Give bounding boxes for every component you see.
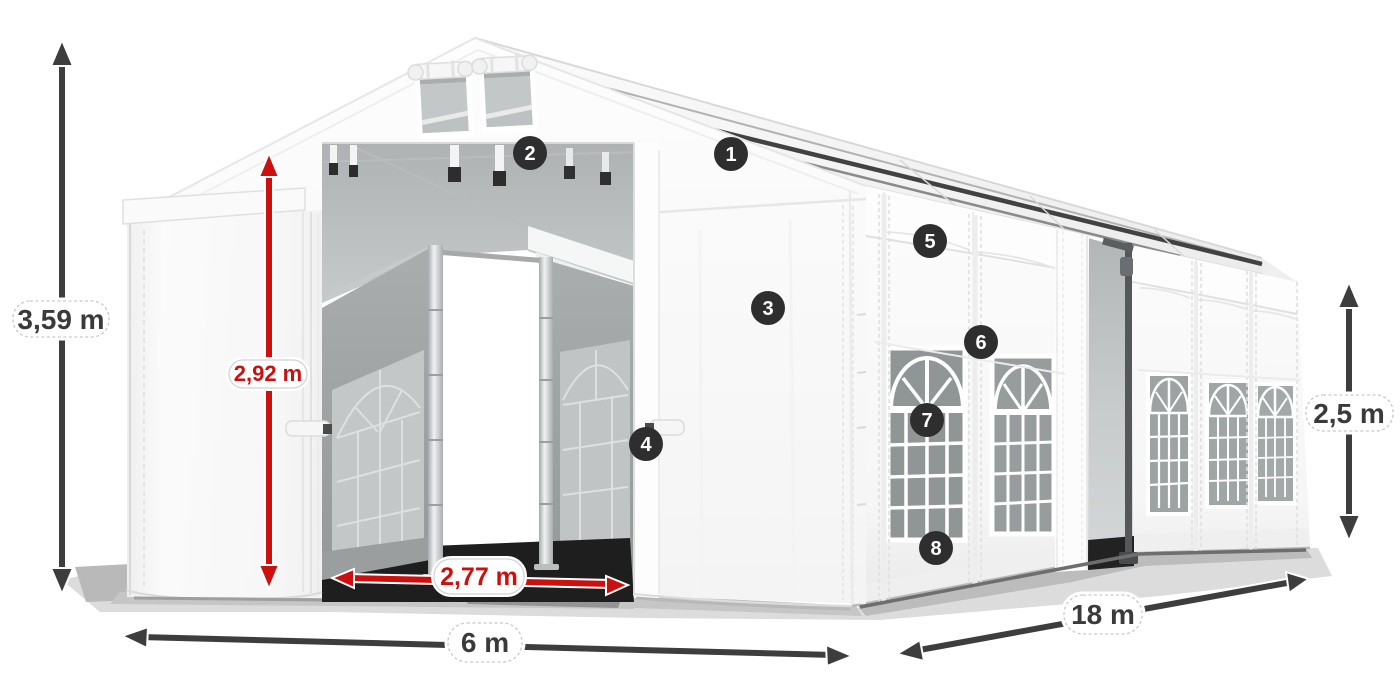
- svg-text:1: 1: [725, 144, 736, 166]
- svg-text:2,92 m: 2,92 m: [234, 361, 303, 386]
- svg-text:3,59 m: 3,59 m: [17, 304, 104, 335]
- svg-text:6: 6: [975, 332, 986, 354]
- svg-text:2: 2: [524, 143, 535, 165]
- svg-text:5: 5: [924, 231, 935, 253]
- svg-text:4: 4: [640, 434, 652, 456]
- svg-text:6 m: 6 m: [461, 627, 509, 658]
- svg-text:3: 3: [762, 298, 773, 320]
- svg-text:2,5 m: 2,5 m: [1313, 398, 1385, 429]
- svg-text:7: 7: [921, 410, 932, 432]
- svg-text:18 m: 18 m: [1071, 599, 1135, 630]
- svg-text:8: 8: [930, 538, 941, 560]
- svg-text:2,77 m: 2,77 m: [440, 563, 518, 591]
